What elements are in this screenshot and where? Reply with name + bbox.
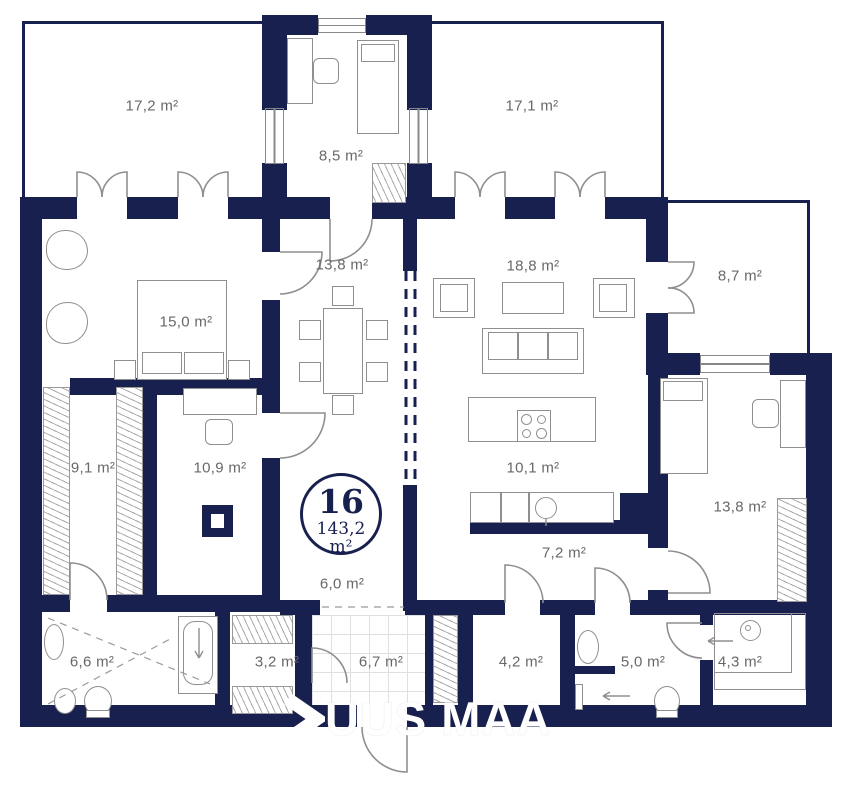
wall bbox=[20, 197, 42, 727]
wall bbox=[770, 353, 832, 375]
desk bbox=[780, 380, 806, 448]
pillow bbox=[142, 352, 182, 374]
wall bbox=[403, 485, 417, 611]
watermark-text: UUS MAA bbox=[325, 693, 551, 745]
burner bbox=[522, 429, 531, 438]
chair bbox=[299, 320, 321, 340]
nightstand bbox=[114, 360, 136, 380]
room-label-kitchen: 10,1 m² bbox=[507, 460, 560, 477]
desk bbox=[183, 388, 257, 415]
room-label-dining-hall: 13,8 m² bbox=[316, 257, 369, 274]
wall bbox=[262, 458, 280, 603]
chair bbox=[366, 362, 388, 382]
wall bbox=[107, 595, 280, 612]
room-label-bedroom-2: 13,8 m² bbox=[714, 499, 767, 516]
counter-divider bbox=[528, 492, 530, 523]
pillow bbox=[184, 352, 224, 374]
room-label-hall: 6,0 m² bbox=[320, 576, 364, 593]
wall bbox=[560, 600, 575, 705]
towel-radiator bbox=[575, 684, 583, 710]
room-label-terrace-right: 8,7 m² bbox=[718, 268, 762, 285]
wall bbox=[228, 197, 262, 219]
window bbox=[409, 108, 428, 164]
unit-number: 16 bbox=[303, 484, 379, 520]
room-label-terrace-top-left: 17,2 m² bbox=[126, 98, 179, 115]
plant bbox=[46, 302, 88, 344]
wall bbox=[405, 600, 505, 615]
sink bbox=[577, 630, 599, 664]
wall bbox=[425, 600, 433, 705]
coffee-table bbox=[502, 282, 564, 314]
room-label-bathroom: 6,6 m² bbox=[70, 654, 114, 671]
window bbox=[700, 355, 770, 373]
wall bbox=[262, 197, 330, 219]
room-label-shower-room: 4,2 m² bbox=[499, 654, 543, 671]
unit-total-area: 143,2 m² bbox=[303, 520, 379, 556]
wall bbox=[262, 219, 280, 252]
pillow bbox=[663, 381, 703, 401]
counter-divider bbox=[500, 492, 502, 523]
zone-divider-dashed bbox=[406, 271, 415, 485]
armchair-seat bbox=[440, 284, 468, 312]
floor-plan: 17,2 m² 8,5 m² 17,1 m² 8,7 m² 15,0 m² 13… bbox=[0, 0, 852, 800]
wall bbox=[143, 395, 157, 603]
chair bbox=[205, 419, 233, 445]
plant bbox=[46, 230, 88, 270]
chair bbox=[313, 58, 339, 84]
wardrobe bbox=[43, 387, 70, 595]
room-label-living-room: 18,8 m² bbox=[507, 258, 560, 275]
room-label-bedroom: 15,0 m² bbox=[160, 314, 213, 331]
room-label-hallway: 7,2 m² bbox=[542, 545, 586, 562]
pillow bbox=[361, 44, 395, 62]
room-label-room-top: 8,5 m² bbox=[319, 148, 363, 165]
sofa-seat bbox=[548, 332, 578, 360]
wall bbox=[700, 600, 713, 625]
kitchen-sink bbox=[535, 497, 557, 519]
unit-badge: 16 143,2 m² bbox=[300, 473, 382, 555]
toilet-tank bbox=[656, 710, 678, 718]
wardrobe bbox=[433, 615, 458, 703]
wardrobe bbox=[232, 615, 293, 644]
sofa-seat bbox=[518, 332, 548, 360]
chair bbox=[752, 399, 779, 428]
wall bbox=[403, 219, 417, 271]
wall bbox=[458, 600, 473, 705]
chair bbox=[366, 320, 388, 340]
wall bbox=[262, 300, 280, 413]
window bbox=[265, 108, 284, 164]
sink bbox=[44, 624, 64, 660]
wall bbox=[806, 353, 832, 727]
burner bbox=[536, 428, 547, 439]
room-label-utility: 4,3 m² bbox=[718, 654, 762, 671]
room-label-closet: 3,2 m² bbox=[255, 654, 299, 671]
wall bbox=[127, 197, 178, 219]
wall bbox=[505, 197, 555, 219]
room-label-terrace-top-right: 17,1 m² bbox=[506, 98, 559, 115]
watermark: UUS MAA bbox=[283, 693, 551, 745]
bidet bbox=[54, 688, 76, 714]
wall bbox=[575, 666, 615, 674]
burner bbox=[537, 415, 546, 424]
room-label-office: 10,9 m² bbox=[194, 460, 247, 477]
window bbox=[318, 18, 366, 33]
wall bbox=[262, 15, 318, 35]
room-label-wc: 5,0 m² bbox=[621, 654, 665, 671]
washing-machine bbox=[740, 620, 761, 641]
wall bbox=[432, 197, 455, 219]
bathtub-inner bbox=[183, 621, 213, 685]
wall bbox=[646, 197, 668, 262]
room-label-dressing: 9,1 m² bbox=[71, 460, 115, 477]
column bbox=[202, 505, 233, 537]
burner bbox=[521, 414, 532, 425]
wall bbox=[42, 595, 70, 612]
desk bbox=[287, 38, 313, 104]
room-label-entry: 6,7 m² bbox=[359, 654, 403, 671]
wall bbox=[20, 197, 77, 219]
duct-shaft bbox=[620, 493, 648, 521]
wall bbox=[646, 353, 700, 375]
chair bbox=[332, 286, 354, 306]
wardrobe bbox=[372, 163, 406, 203]
uus-maa-chevron-icon bbox=[283, 693, 325, 745]
chair bbox=[332, 395, 354, 415]
armchair-seat bbox=[599, 284, 627, 312]
toilet-tank bbox=[86, 710, 110, 718]
dining-table bbox=[323, 308, 363, 394]
nightstand bbox=[228, 360, 250, 380]
washing-machine-drum bbox=[745, 625, 751, 631]
wall bbox=[366, 15, 432, 35]
wardrobe bbox=[777, 498, 807, 602]
sofa-seat bbox=[488, 332, 518, 360]
chair bbox=[299, 362, 321, 382]
wardrobe bbox=[116, 387, 143, 595]
wall bbox=[295, 600, 312, 705]
wall bbox=[700, 660, 713, 705]
